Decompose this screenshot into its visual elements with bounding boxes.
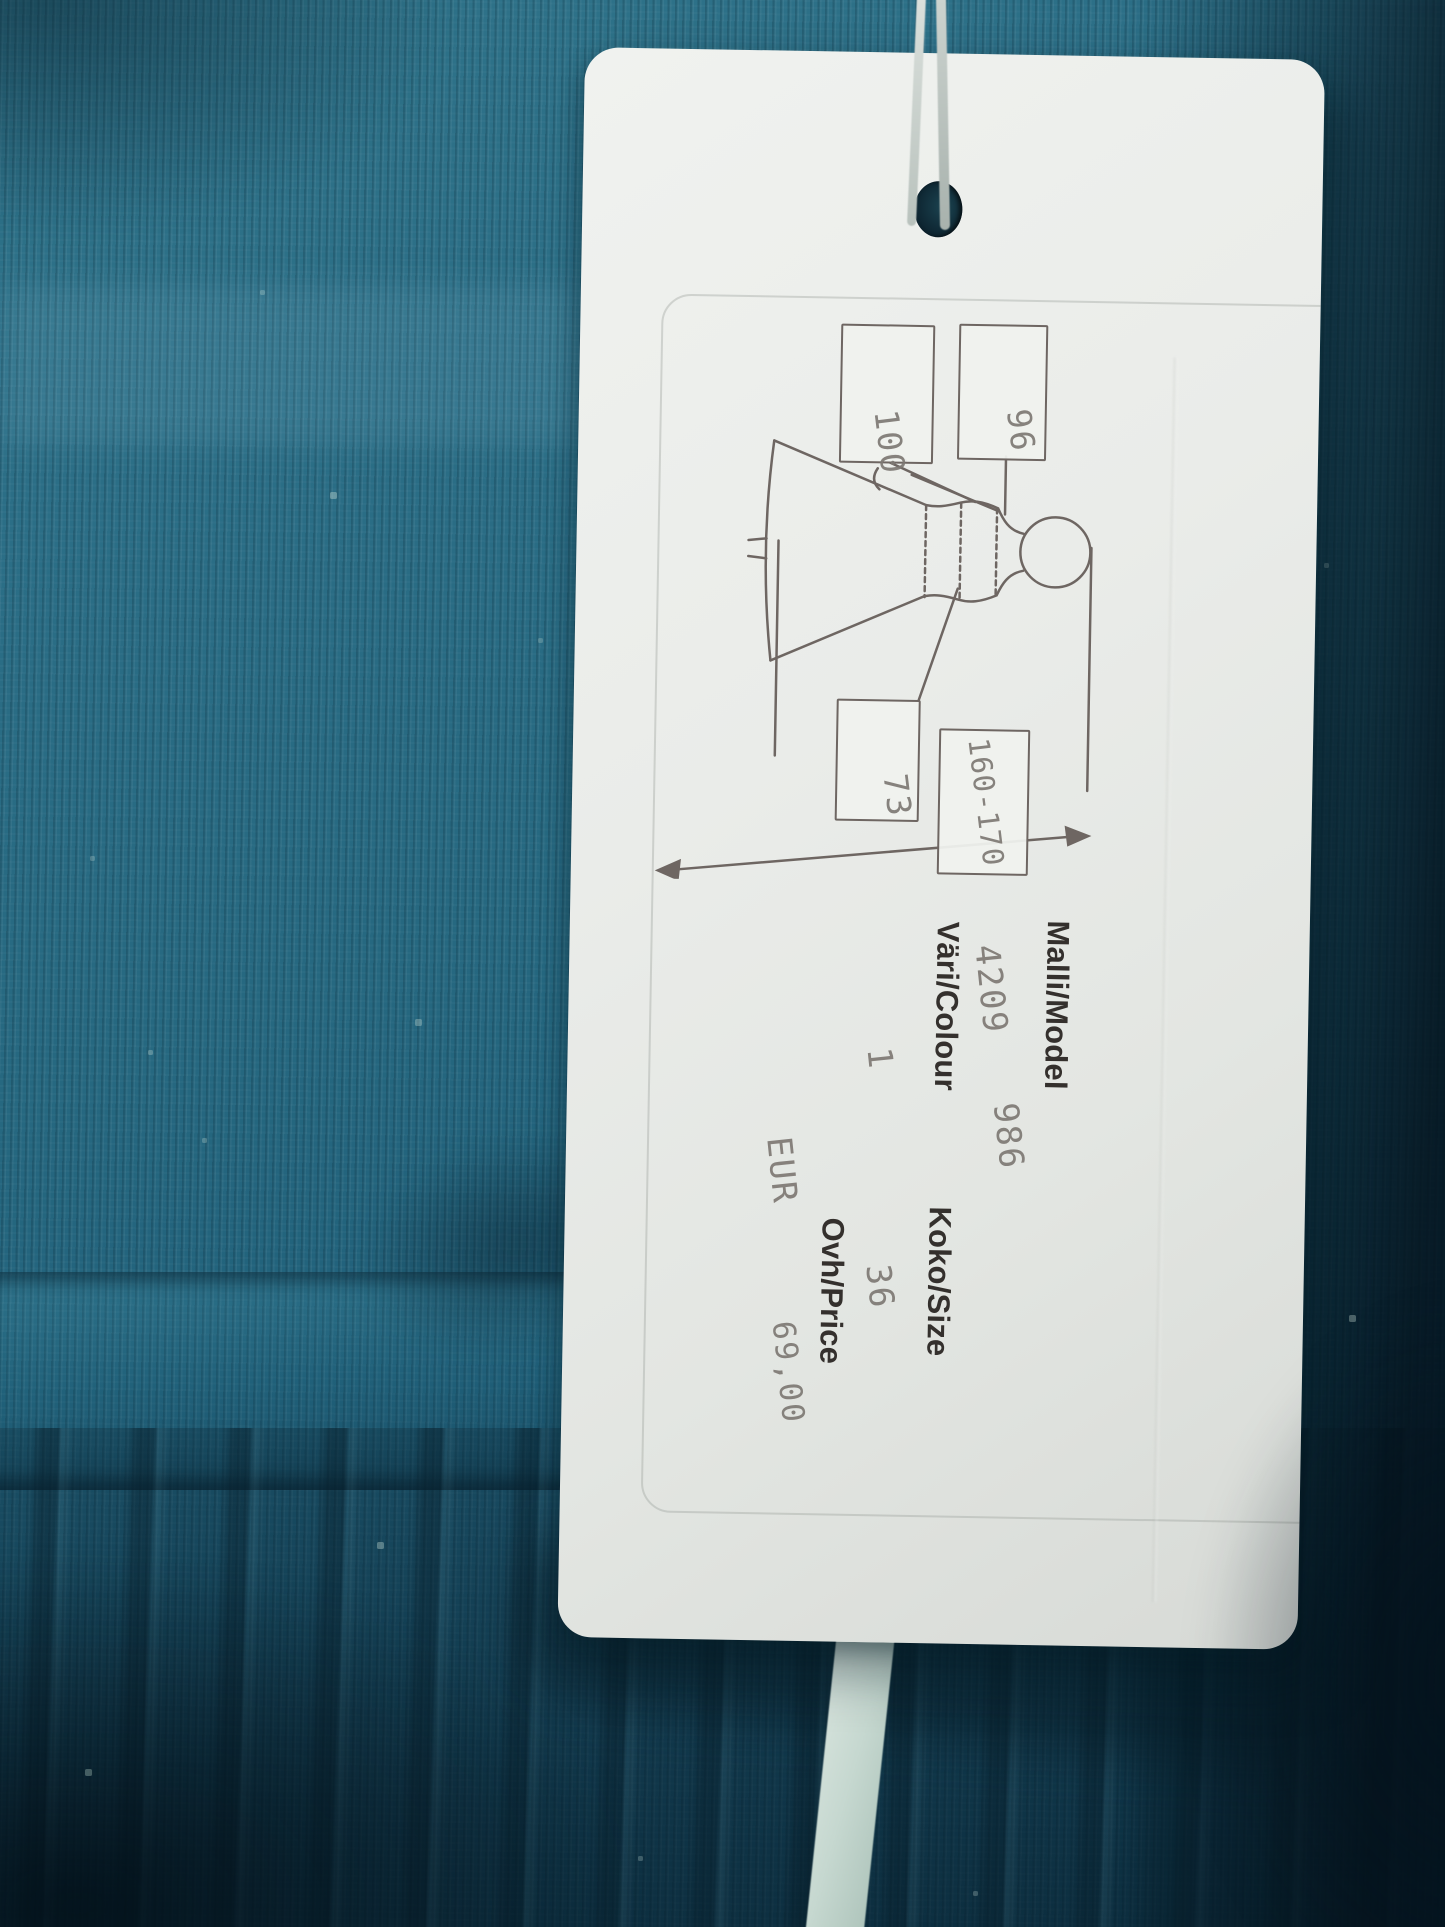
lint-flecks bbox=[0, 0, 1, 1]
measurement-box-height: 160-170 bbox=[937, 728, 1031, 876]
label-price: Ovh/Price bbox=[812, 1217, 851, 1364]
value-model-2: 986 bbox=[985, 1101, 1032, 1172]
value-size: 36 bbox=[857, 1262, 901, 1311]
hips-value: 100 bbox=[866, 408, 913, 478]
photo-scene: 96 100 73 160-170 Malli/Model 4209 986 V… bbox=[0, 0, 1445, 1927]
label-size: Koko/Size bbox=[919, 1206, 958, 1357]
shadow-top-left bbox=[0, 0, 460, 240]
measurement-box-bust: 96 bbox=[957, 324, 1048, 462]
label-model: Malli/Model bbox=[1037, 920, 1076, 1090]
bust-value: 96 bbox=[999, 407, 1043, 455]
measurement-dashed-lines bbox=[925, 502, 998, 601]
value-colour: 1 bbox=[858, 1045, 900, 1072]
label-colour: Väri/Colour bbox=[927, 921, 966, 1091]
measurement-box-waist: 73 bbox=[835, 699, 921, 822]
bust-connector-line bbox=[1005, 456, 1006, 514]
value-currency: EUR bbox=[758, 1135, 805, 1206]
fabric-highlight-band bbox=[0, 285, 580, 445]
figure-head bbox=[1020, 517, 1091, 588]
shadow-bottom-right-overlay bbox=[1190, 1280, 1445, 1927]
height-range-value: 160-170 bbox=[960, 730, 1011, 875]
height-top-line bbox=[1087, 548, 1091, 791]
waist-value: 73 bbox=[876, 772, 920, 820]
waist-connector-line bbox=[919, 588, 958, 701]
measurement-box-hips: 100 bbox=[839, 324, 935, 465]
tag-hole bbox=[914, 181, 963, 238]
height-ground-line bbox=[775, 541, 779, 756]
